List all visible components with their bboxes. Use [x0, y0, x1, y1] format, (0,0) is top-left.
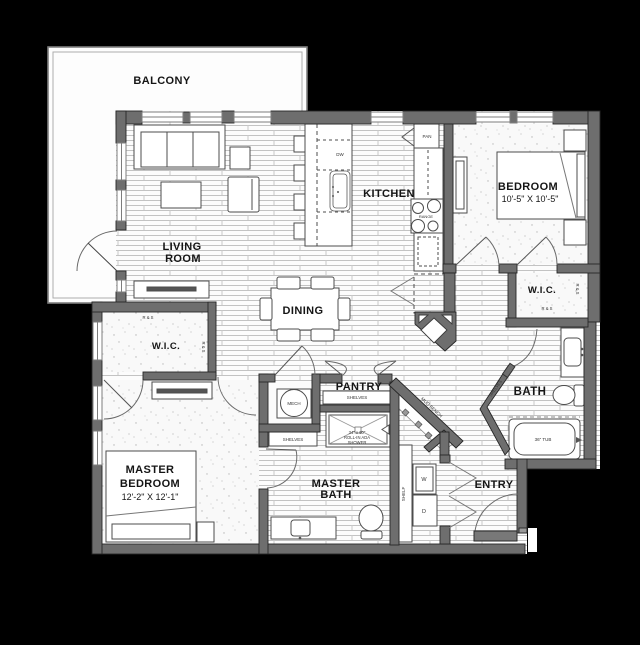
svg-text:BATH: BATH: [320, 489, 351, 501]
svg-text:MASTER: MASTER: [126, 464, 175, 476]
svg-text:R & S: R & S: [201, 342, 206, 353]
svg-text:D: D: [422, 509, 426, 515]
svg-text:BATH: BATH: [514, 386, 547, 398]
svg-text:LIVING: LIVING: [162, 241, 201, 253]
svg-text:W.I.C.: W.I.C.: [528, 285, 556, 296]
svg-text:BEDROOM: BEDROOM: [498, 181, 558, 193]
svg-text:SHELVES: SHELVES: [283, 437, 303, 442]
svg-text:BALCONY: BALCONY: [133, 75, 190, 87]
svg-text:RANGE: RANGE: [419, 214, 434, 219]
svg-text:R & S: R & S: [143, 315, 154, 320]
svg-text:SHELVES: SHELVES: [347, 395, 367, 400]
svg-text:W.I.C.: W.I.C.: [152, 341, 180, 352]
svg-text:10'-5" X 10'-5": 10'-5" X 10'-5": [502, 194, 559, 204]
svg-text:R & S: R & S: [575, 284, 580, 295]
svg-text:KITCHEN: KITCHEN: [363, 188, 415, 200]
svg-text:BEDROOM: BEDROOM: [120, 478, 180, 490]
svg-text:W: W: [421, 477, 427, 483]
svg-text:SHELF: SHELF: [401, 487, 406, 502]
svg-text:PAN: PAN: [423, 134, 432, 139]
svg-text:DW: DW: [336, 152, 344, 157]
svg-text:12'-2" X 12'-1": 12'-2" X 12'-1": [122, 492, 179, 502]
svg-text:PANTRY: PANTRY: [336, 381, 383, 393]
svg-text:MECH: MECH: [287, 401, 300, 406]
svg-text:ROOM: ROOM: [165, 253, 201, 265]
svg-text:DINING: DINING: [283, 305, 324, 317]
svg-text:R & S: R & S: [542, 306, 553, 311]
svg-text:ENTRY: ENTRY: [475, 479, 514, 491]
svg-text:SHOWER: SHOWER: [348, 440, 367, 445]
svg-text:36" TUB: 36" TUB: [535, 437, 552, 442]
